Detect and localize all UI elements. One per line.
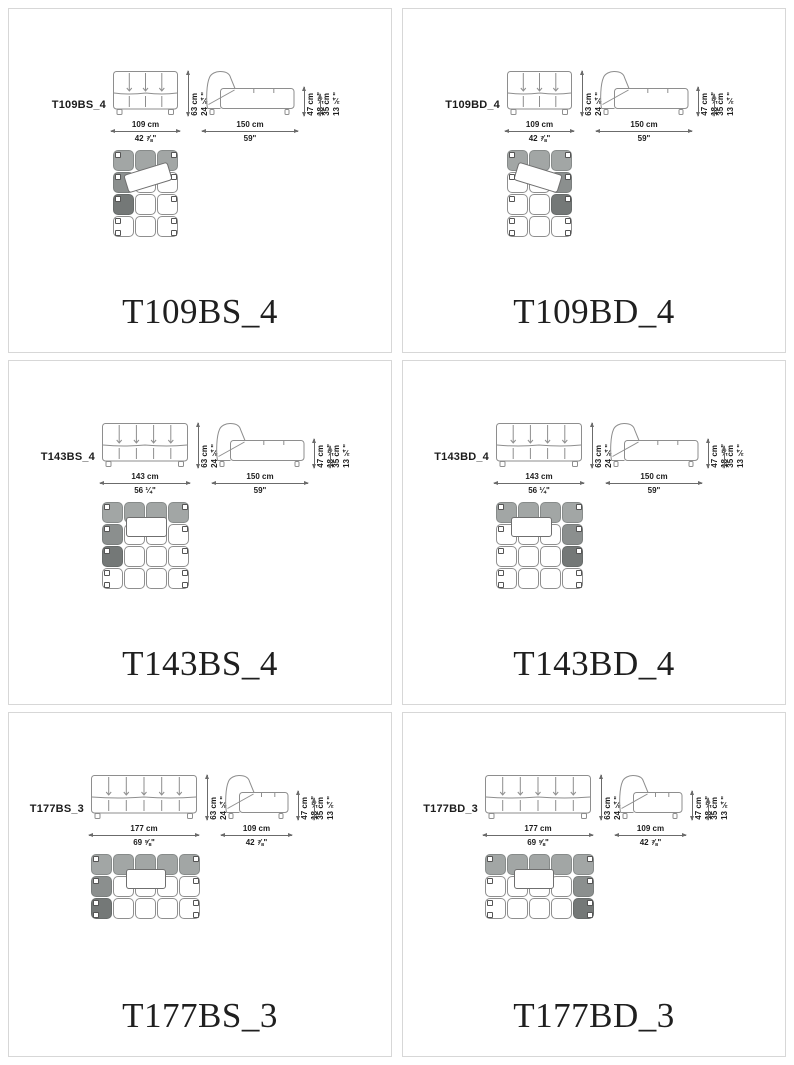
connector-marker <box>498 548 504 554</box>
connector-marker <box>104 548 110 554</box>
side-view-drawing <box>205 69 295 116</box>
dimension-arrow-line <box>698 87 699 116</box>
dimension-arrow-line <box>601 775 602 820</box>
front-view-drawing <box>496 421 582 468</box>
connector-marker <box>193 912 199 918</box>
plan-cell <box>146 568 167 589</box>
depth-dimension: 109 cm 42 ⅞" <box>614 824 687 847</box>
depth-dimension: 109 cm 42 ⅞" <box>220 824 293 847</box>
plan-cell <box>551 898 572 919</box>
connector-marker <box>498 504 504 510</box>
plan-cell <box>551 876 572 897</box>
dimension-cm-label: 109 cm <box>614 824 687 833</box>
connector-marker <box>576 548 582 554</box>
plan-cell <box>507 898 528 919</box>
product-code-label: T177BD_3 <box>403 803 478 815</box>
seat-height-dimension: 35 cm 13 ¾" <box>714 68 735 116</box>
plan-cell <box>529 898 550 919</box>
seat-height-dimension: 35 cm 13 ¾" <box>314 772 335 820</box>
side-view-drawing <box>618 773 683 820</box>
front-view-drawing <box>102 421 188 468</box>
connector-marker <box>93 856 99 862</box>
side-view-drawing <box>215 421 305 468</box>
product-caption: T109BS_4 <box>9 292 391 332</box>
dimension-cm-label: 47 cm <box>306 93 315 116</box>
connector-marker <box>193 856 199 862</box>
connector-marker <box>565 196 571 202</box>
depth-dimension: 150 cm 59" <box>211 472 309 495</box>
front-width-dimension: 143 cm 56 ¼" <box>99 472 191 495</box>
dimension-cm-label: 177 cm <box>482 824 594 833</box>
side-view-drawing <box>224 773 289 820</box>
connector-marker <box>576 504 582 510</box>
front-width-dimension: 143 cm 56 ¼" <box>493 472 585 495</box>
dimension-inch-label: 13 ¾" <box>736 444 745 468</box>
seat-height-dimension: 35 cm 13 ¾" <box>708 772 729 820</box>
dimension-cm-label: 109 cm <box>220 824 293 833</box>
connector-marker <box>193 900 199 906</box>
connector-marker <box>587 856 593 862</box>
dimension-cm-label: 63 cm <box>209 797 218 820</box>
connector-marker <box>498 582 504 588</box>
dimension-cm-label: 143 cm <box>99 472 191 481</box>
connector-marker <box>487 878 493 884</box>
dimension-cm-label: 63 cm <box>603 797 612 820</box>
dimension-arrow-line <box>592 423 593 468</box>
dimension-arrow-line <box>212 483 308 484</box>
connector-marker <box>182 570 188 576</box>
product-code-label: T177BS_3 <box>9 803 84 815</box>
plan-cell <box>135 898 156 919</box>
product-caption: T109BD_4 <box>403 292 785 332</box>
plan-cell <box>529 194 550 215</box>
dimension-arrow-line <box>606 483 702 484</box>
dimension-inch-label: 13 ¾" <box>720 796 729 820</box>
dimension-cm-label: 109 cm <box>504 120 575 129</box>
front-width-dimension: 177 cm 69 ⅝" <box>482 824 594 847</box>
product-panel: T109BD_4 63 cm 24 ¾" 109 cm 42 ⅞" 150 cm… <box>402 8 786 353</box>
dimension-cm-label: 35 cm <box>716 93 725 116</box>
dimension-cm-label: 35 cm <box>710 797 719 820</box>
dimension-inch-label: 42 ⅞" <box>110 134 181 143</box>
plan-cell <box>540 546 561 567</box>
connector-marker <box>487 856 493 862</box>
connector-marker <box>115 196 121 202</box>
connector-marker <box>104 504 110 510</box>
connector-marker <box>509 196 515 202</box>
dimension-cm-label: 47 cm <box>700 93 709 116</box>
connector-marker <box>509 152 515 158</box>
plan-cell <box>146 546 167 567</box>
connector-marker <box>587 900 593 906</box>
dimension-arrow-line <box>320 94 321 116</box>
connector-marker <box>487 912 493 918</box>
dimension-arrow-line <box>111 131 180 132</box>
connector-marker <box>115 230 121 236</box>
dimension-arrow-line <box>89 835 199 836</box>
dimension-inch-label: 13 ¾" <box>332 92 341 116</box>
side-view-drawing <box>609 421 699 468</box>
dimension-arrow-line <box>714 94 715 116</box>
dimension-arrow-line <box>708 798 709 820</box>
dimension-inch-label: 59" <box>211 486 309 495</box>
product-code-label: T109BS_4 <box>9 99 106 111</box>
front-width-dimension: 109 cm 42 ⅞" <box>110 120 181 143</box>
connector-marker <box>509 174 515 180</box>
back-cushion <box>126 517 167 537</box>
product-code-label: T143BS_4 <box>9 451 95 463</box>
dimension-inch-label: 59" <box>595 134 693 143</box>
dimension-cm-label: 35 cm <box>332 445 341 468</box>
dimension-arrow-line <box>207 775 208 820</box>
connector-marker <box>487 900 493 906</box>
plan-view-drawing <box>91 854 201 920</box>
dimension-inch-label: 42 ⅞" <box>220 838 293 847</box>
dimension-cm-label: 63 cm <box>594 445 603 468</box>
dimension-arrow-line <box>298 791 299 820</box>
connector-marker <box>498 526 504 532</box>
dimension-arrow-line <box>724 446 725 468</box>
dimension-inch-label: 56 ¼" <box>99 486 191 495</box>
dimension-cm-label: 150 cm <box>605 472 703 481</box>
dimension-cm-label: 63 cm <box>200 445 209 468</box>
page-grid: T109BS_4 63 cm 24 ¾" 109 cm 42 ⅞" 150 cm… <box>0 0 794 1065</box>
connector-marker <box>576 526 582 532</box>
plan-cell <box>124 546 145 567</box>
dimension-arrow-line <box>692 791 693 820</box>
dimension-arrow-line <box>100 483 190 484</box>
connector-marker <box>115 174 121 180</box>
dimension-arrow-line <box>582 71 583 116</box>
plan-view-drawing <box>485 854 595 920</box>
dimension-inch-label: 42 ⅞" <box>504 134 575 143</box>
connector-marker <box>565 152 571 158</box>
back-cushion <box>514 869 554 889</box>
product-caption: T143BD_4 <box>403 644 785 684</box>
dimension-arrow-line <box>304 87 305 116</box>
product-panel: T143BD_4 63 cm 24 ¾" 143 cm 56 ¼" 150 cm… <box>402 360 786 705</box>
dimension-arrow-line <box>596 131 692 132</box>
dimension-cm-label: 63 cm <box>190 93 199 116</box>
dimension-cm-label: 109 cm <box>110 120 181 129</box>
dimension-arrow-line <box>708 439 709 468</box>
plan-view-drawing <box>102 502 190 590</box>
dimension-inch-label: 59" <box>605 486 703 495</box>
seat-height-dimension: 35 cm 13 ¾" <box>724 420 745 468</box>
back-cushion <box>126 869 166 889</box>
dimension-inch-label: 42 ⅞" <box>614 838 687 847</box>
plan-cell <box>518 546 539 567</box>
connector-marker <box>104 582 110 588</box>
dimension-arrow-line <box>494 483 584 484</box>
connector-marker <box>193 878 199 884</box>
product-code-label: T109BD_4 <box>403 99 500 111</box>
product-caption: T177BD_3 <box>403 996 785 1036</box>
product-panel: T177BD_3 63 cm 24 ¾" 177 cm 69 ⅝" 109 cm… <box>402 712 786 1057</box>
dimension-arrow-line <box>615 835 686 836</box>
connector-marker <box>93 912 99 918</box>
connector-marker <box>587 912 593 918</box>
connector-marker <box>171 152 177 158</box>
connector-marker <box>171 174 177 180</box>
connector-marker <box>565 174 571 180</box>
dimension-cm-label: 35 cm <box>322 93 331 116</box>
connector-marker <box>93 900 99 906</box>
dimension-arrow-line <box>330 446 331 468</box>
plan-view-drawing <box>507 150 573 238</box>
dimension-inch-label: 13 ¾" <box>726 92 735 116</box>
product-panel: T143BS_4 63 cm 24 ¾" 143 cm 56 ¼" 150 cm… <box>8 360 392 705</box>
connector-marker <box>498 570 504 576</box>
dimension-arrow-line <box>188 71 189 116</box>
plan-cell <box>113 898 134 919</box>
seat-height-dimension: 35 cm 13 ¾" <box>320 68 341 116</box>
connector-marker <box>93 878 99 884</box>
product-panel: T177BS_3 63 cm 24 ¾" 177 cm 69 ⅝" 109 cm… <box>8 712 392 1057</box>
front-view-drawing <box>113 69 178 116</box>
dimension-cm-label: 47 cm <box>300 797 309 820</box>
dimension-cm-label: 47 cm <box>316 445 325 468</box>
connector-marker <box>171 218 177 224</box>
dimension-inch-label: 13 ¾" <box>342 444 351 468</box>
front-width-dimension: 177 cm 69 ⅝" <box>88 824 200 847</box>
dimension-cm-label: 150 cm <box>595 120 693 129</box>
depth-dimension: 150 cm 59" <box>201 120 299 143</box>
connector-marker <box>115 152 121 158</box>
dimension-inch-label: 56 ¼" <box>493 486 585 495</box>
plan-cell <box>157 898 178 919</box>
dimension-arrow-line <box>483 835 593 836</box>
product-panel: T109BS_4 63 cm 24 ¾" 109 cm 42 ⅞" 150 cm… <box>8 8 392 353</box>
front-view-drawing <box>507 69 572 116</box>
dimension-arrow-line <box>314 439 315 468</box>
plan-cell <box>540 568 561 589</box>
dimension-inch-label: 59" <box>201 134 299 143</box>
plan-cell <box>135 216 156 237</box>
connector-marker <box>171 230 177 236</box>
dimension-cm-label: 63 cm <box>584 93 593 116</box>
product-caption: T143BS_4 <box>9 644 391 684</box>
depth-dimension: 150 cm 59" <box>595 120 693 143</box>
back-cushion <box>511 517 552 537</box>
plan-cell <box>518 568 539 589</box>
plan-view-drawing <box>496 502 584 590</box>
plan-cell <box>551 854 572 875</box>
connector-marker <box>565 218 571 224</box>
dimension-inch-label: 13 ¾" <box>326 796 335 820</box>
dimension-cm-label: 35 cm <box>316 797 325 820</box>
dimension-cm-label: 150 cm <box>211 472 309 481</box>
dimension-arrow-line <box>505 131 574 132</box>
front-width-dimension: 109 cm 42 ⅞" <box>504 120 575 143</box>
side-view-drawing <box>599 69 689 116</box>
connector-marker <box>182 526 188 532</box>
connector-marker <box>171 196 177 202</box>
dimension-cm-label: 150 cm <box>201 120 299 129</box>
connector-marker <box>182 582 188 588</box>
product-code-label: T143BD_4 <box>403 451 489 463</box>
dimension-arrow-line <box>198 423 199 468</box>
plan-cell <box>124 568 145 589</box>
product-caption: T177BS_3 <box>9 996 391 1036</box>
connector-marker <box>182 504 188 510</box>
front-view-drawing <box>485 773 591 820</box>
connector-marker <box>509 230 515 236</box>
dimension-inch-label: 69 ⅝" <box>88 838 200 847</box>
connector-marker <box>565 230 571 236</box>
dimension-cm-label: 35 cm <box>726 445 735 468</box>
plan-cell <box>529 216 550 237</box>
dimension-arrow-line <box>221 835 292 836</box>
dimension-cm-label: 143 cm <box>493 472 585 481</box>
connector-marker <box>576 582 582 588</box>
front-view-drawing <box>91 773 197 820</box>
dimension-inch-label: 69 ⅝" <box>482 838 594 847</box>
plan-cell <box>135 194 156 215</box>
dimension-cm-label: 47 cm <box>694 797 703 820</box>
dimension-arrow-line <box>202 131 298 132</box>
dimension-arrow-line <box>314 798 315 820</box>
dimension-cm-label: 47 cm <box>710 445 719 468</box>
seat-height-dimension: 35 cm 13 ¾" <box>330 420 351 468</box>
connector-marker <box>182 548 188 554</box>
connector-marker <box>509 218 515 224</box>
connector-marker <box>104 526 110 532</box>
dimension-cm-label: 177 cm <box>88 824 200 833</box>
connector-marker <box>576 570 582 576</box>
connector-marker <box>104 570 110 576</box>
connector-marker <box>587 878 593 884</box>
connector-marker <box>115 218 121 224</box>
plan-view-drawing <box>113 150 179 238</box>
depth-dimension: 150 cm 59" <box>605 472 703 495</box>
